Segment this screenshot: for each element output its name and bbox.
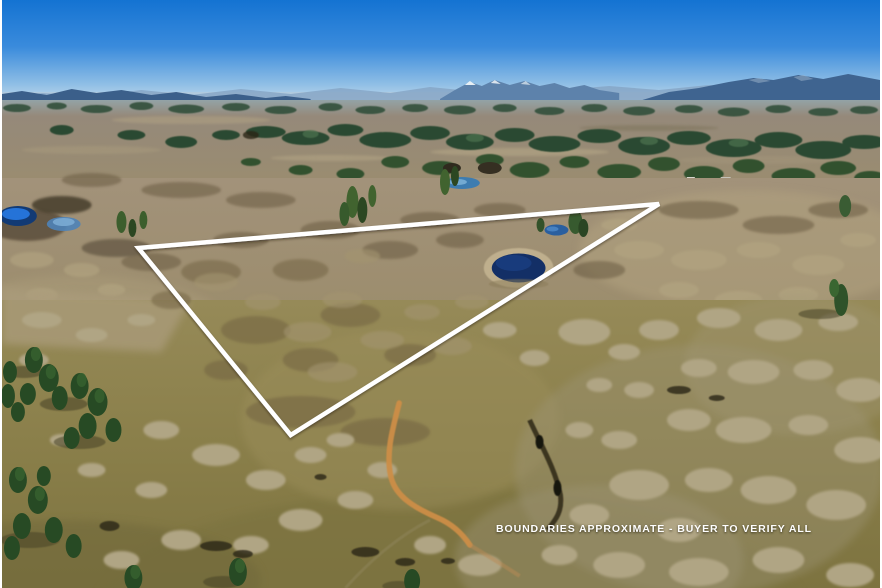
disclaimer-text: BOUNDARIES APPROXIMATE - BUYER TO VERIFY… bbox=[496, 523, 812, 535]
main-pond bbox=[484, 248, 554, 289]
listing-photo: BOUNDARIES APPROXIMATE - BUYER TO VERIFY… bbox=[0, 0, 882, 588]
aerial-photo bbox=[0, 0, 882, 588]
aerial-photo-canvas bbox=[2, 0, 880, 588]
lone-pine-upper bbox=[839, 195, 851, 217]
